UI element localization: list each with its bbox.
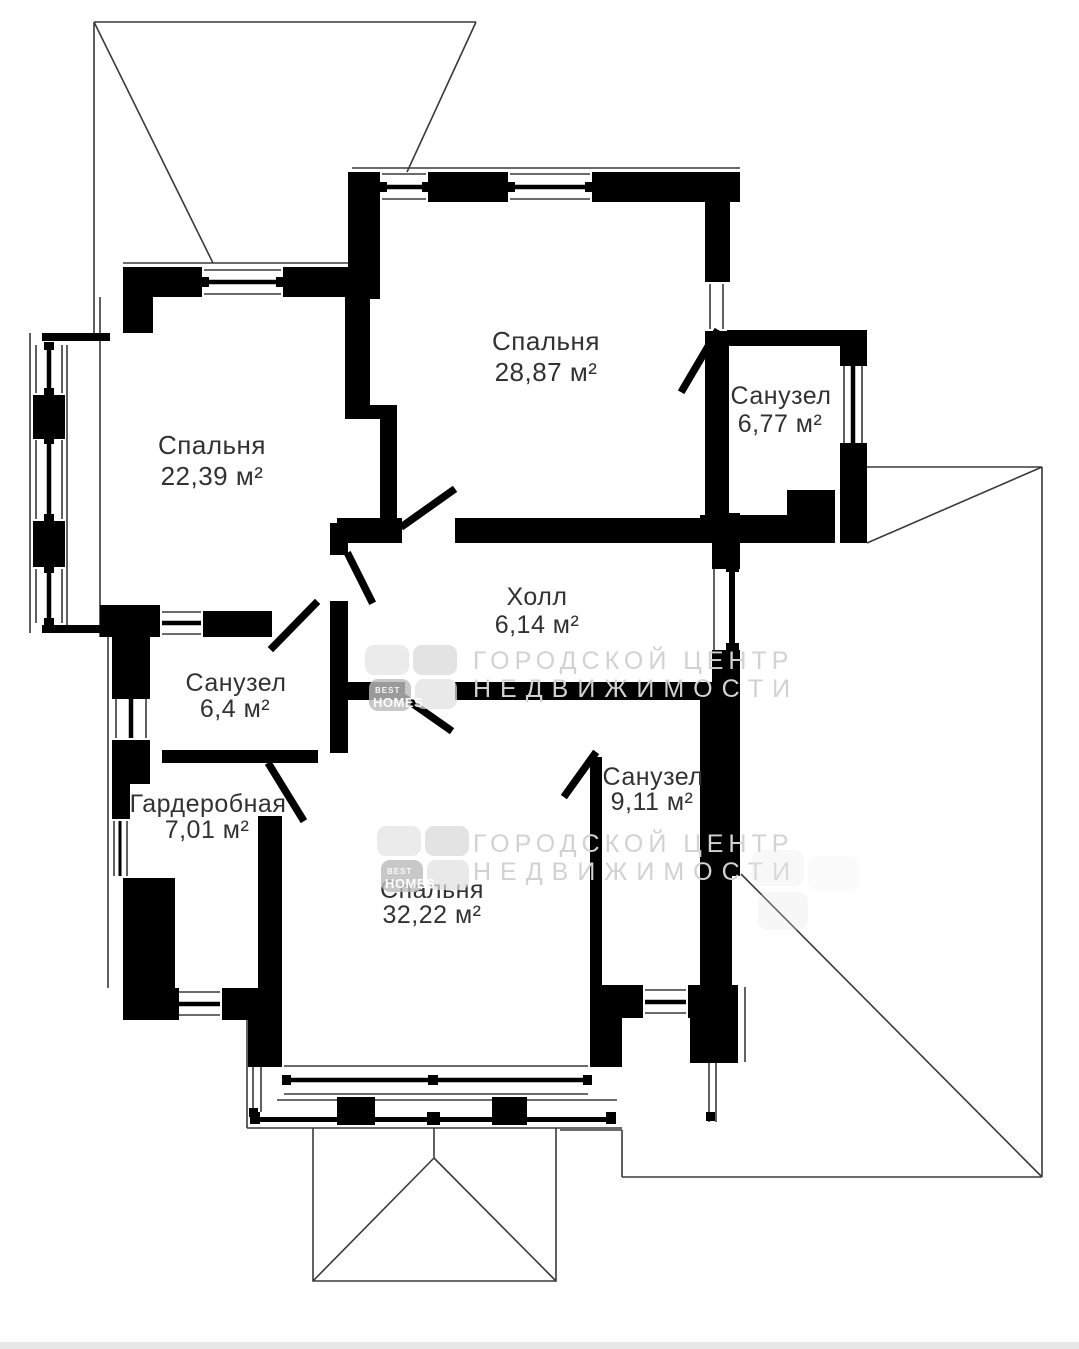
room-label-bedroom-left: Спальня 22,39 м²: [158, 430, 266, 491]
photo-edge-strip: [0, 1342, 1079, 1349]
room-area: 28,87 м²: [495, 357, 598, 387]
watermark-row-1: BEST HOMES ГОРОДСКОЙ ЦЕНТР НЕДВИЖИМОСТИ: [365, 645, 799, 711]
watermark-text-line1: ГОРОДСКОЙ ЦЕНТР: [473, 828, 793, 858]
door-bedroom-left: [349, 556, 371, 600]
porch-balustrade: [250, 1097, 616, 1125]
room-area: 6,77 м²: [738, 410, 823, 438]
room-name: Холл: [507, 583, 568, 611]
logo-best-text: BEST: [375, 686, 400, 695]
agency-logo-ghost: [752, 850, 860, 930]
room-label-hall: Холл 6,14 м²: [495, 583, 580, 639]
room-area: 9,11 м²: [611, 788, 694, 816]
watermark-text-line2: НЕДВИЖИМОСТИ: [473, 675, 799, 703]
room-name: Санузел: [186, 669, 287, 697]
room-name: Спальня: [158, 430, 266, 460]
logo-homes-text: HOMES: [385, 876, 435, 891]
room-label-bathroom-top-right: Санузел 6,77 м²: [731, 382, 832, 438]
room-area: 32,22 м²: [382, 901, 481, 929]
floor-plan-svg: Спальня 28,87 м² Санузел 6,77 м² Спальня…: [0, 0, 1079, 1349]
agency-logo: BEST HOMES: [377, 826, 469, 892]
room-label-bathroom-bottom-right: Санузел 9,11 м²: [603, 763, 704, 816]
logo-best-text: BEST: [387, 867, 412, 876]
room-name: Санузел: [731, 382, 832, 410]
room-name: Гардеробная: [130, 790, 287, 818]
walls: [33, 172, 867, 1067]
agency-logo: BEST HOMES: [365, 645, 457, 711]
roof-porch-bottom: [313, 1128, 556, 1281]
logo-homes-text: HOMES: [373, 695, 423, 710]
room-label-bedroom-top: Спальня 28,87 м²: [492, 326, 600, 387]
room-area: 6,14 м²: [495, 611, 580, 639]
watermark-text-line2: НЕДВИЖИМОСТИ: [473, 858, 799, 886]
watermark-text-line1: ГОРОДСКОЙ ЦЕНТР: [473, 645, 793, 675]
door-bathroom-mid-left: [273, 604, 315, 647]
door-bathroom-bottom: [566, 755, 594, 794]
room-area: 7,01 м²: [165, 816, 250, 844]
room-area: 6,4 м²: [200, 695, 270, 723]
room-name: Санузел: [603, 763, 704, 791]
room-label-bathroom-mid-left: Санузел 6,4 м²: [186, 669, 287, 723]
roof-right: [560, 467, 1042, 1177]
floor-plan-page: Спальня 28,87 м² Санузел 6,77 м² Спальня…: [0, 0, 1079, 1349]
door-bedroom-top: [404, 491, 452, 525]
room-area: 22,39 м²: [161, 461, 264, 491]
room-name: Спальня: [492, 326, 600, 356]
